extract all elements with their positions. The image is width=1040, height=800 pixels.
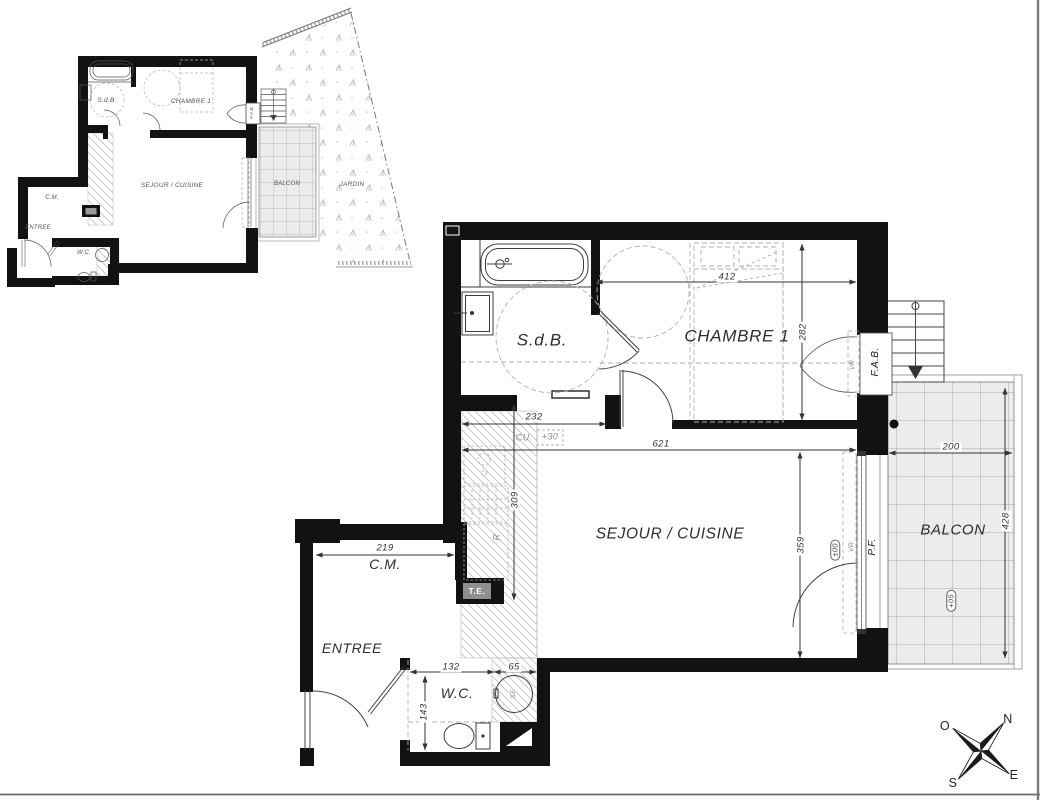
dim-sejour-depth: 359 <box>796 535 806 556</box>
dim-chambre-depth: 282 <box>798 322 808 343</box>
annotation-fridge: R <box>493 534 502 541</box>
annotation-vr-sejour: VR <box>849 542 856 552</box>
overview-label-sdb: S.d.B. <box>97 98 116 105</box>
annotation-cu-level: +30 <box>542 433 558 442</box>
duct-shaft <box>500 722 538 752</box>
overview-label-balcon: BALCON <box>274 181 300 187</box>
overview-te-box <box>86 208 97 215</box>
level-marker-balcony: +05 <box>946 590 956 612</box>
overview-plan <box>7 8 413 287</box>
annotation-fab: F.A.B. <box>871 348 881 377</box>
overview-label-cm: C.M. <box>45 195 59 201</box>
floorplan-linework <box>0 0 1040 800</box>
compass-east: E <box>1010 769 1019 782</box>
overview-label-sejour: SEJOUR / CUISINE <box>141 183 203 190</box>
level-marker-main: ±00 <box>830 539 840 560</box>
annotation-pf: P.F. <box>868 538 878 555</box>
toilet <box>444 723 490 749</box>
dim-wc-niche: 65 <box>506 662 521 672</box>
dim-wc-width: 132 <box>441 662 462 672</box>
label-sejour: SEJOUR / CUISINE <box>596 526 745 542</box>
dim-kitchen-depth: 309 <box>510 490 520 511</box>
bathtub <box>461 240 591 287</box>
overview-label-chambre: CHAMBRE 1 <box>171 99 211 106</box>
dim-wc-depth: 143 <box>419 702 429 723</box>
dim-chambre-width: 412 <box>717 272 738 282</box>
dim-balcon-depth: 428 <box>1001 511 1011 532</box>
label-balcon: BALCON <box>920 523 985 538</box>
overview-dashed <box>90 60 213 117</box>
dim-sdb-width: 232 <box>524 412 545 422</box>
dim-cm-width: 219 <box>375 543 396 553</box>
overview-label-jardin: JARDIN <box>339 182 364 189</box>
annotation-cu: CU. <box>516 434 533 443</box>
compass-south: S <box>949 777 958 790</box>
overview-walls <box>7 56 258 287</box>
dim-balcon-width: 200 <box>941 442 962 452</box>
annotation-vr-chambre: VR <box>850 360 857 370</box>
label-cm: C.M. <box>369 557 401 571</box>
label-chambre: CHAMBRE 1 <box>684 328 789 345</box>
shelf <box>552 391 589 398</box>
label-sdb: S.d.B. <box>517 332 567 349</box>
compass-north: N <box>1003 713 1013 726</box>
label-wc: W.C. <box>441 686 474 700</box>
walls-main <box>295 222 888 766</box>
overview-label-fab: F.A.B <box>250 107 255 119</box>
overview-label-wc: W.C. <box>77 250 91 256</box>
floorplan-page: S.d.B. CHAMBRE 1 SEJOUR / CUISINE C.M. E… <box>0 0 1040 800</box>
drain-pipe <box>890 420 899 429</box>
compass-west: O <box>940 720 950 733</box>
compass-rose <box>953 723 1009 779</box>
dim-sejour-width: 621 <box>651 439 672 449</box>
annotation-washer: SE <box>511 689 518 698</box>
annotation-te: T.E. <box>468 587 485 596</box>
stairs <box>887 301 944 382</box>
label-entree: ENTREE <box>322 641 382 655</box>
main-plan <box>295 222 1022 766</box>
overview-label-entree: ENTREE <box>25 225 51 231</box>
overview-windows <box>242 158 251 227</box>
overview-stairs <box>261 89 286 123</box>
